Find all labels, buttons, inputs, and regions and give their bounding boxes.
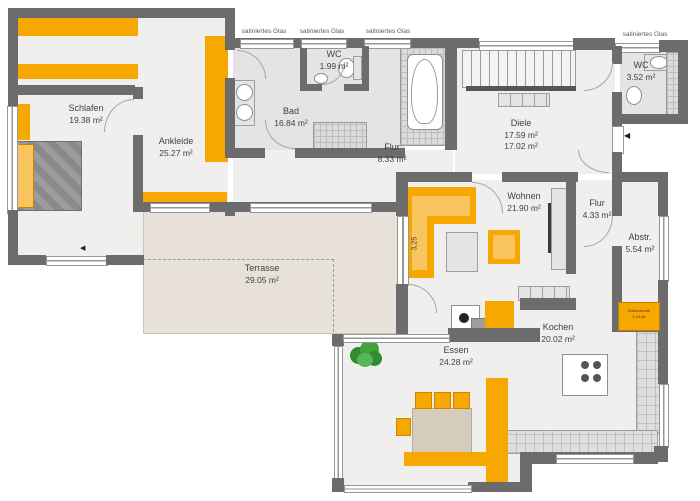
wall-segment (431, 38, 479, 48)
room-name: Bad (283, 106, 299, 116)
toilet-icon (626, 86, 642, 105)
wall-segment (468, 482, 524, 492)
room-area: 17.02 m² (504, 141, 538, 151)
room-area: 3.52 m² (627, 72, 656, 82)
staircase (462, 50, 576, 88)
dining-chair (453, 392, 470, 409)
sofa-seat (412, 200, 427, 270)
room-area: 21.90 m² (507, 203, 541, 213)
cooktop-burner-icon (581, 361, 589, 369)
room-area: 5.54 m² (626, 244, 655, 254)
room-name: Flur (384, 142, 400, 152)
window-wall (334, 346, 343, 480)
room-area: 16.84 m² (274, 118, 308, 128)
tv-screen (548, 203, 551, 253)
room-area: 19.38 m² (69, 115, 103, 125)
wall-post (332, 478, 344, 492)
entrance-arrow-icon: ◀ (624, 132, 630, 140)
wall-segment (448, 328, 540, 342)
room-label-essen: Essen 24.28 m² (439, 345, 473, 368)
sofa-dimension-label: 3,25 (411, 237, 418, 251)
room-label-wohnen: Wohnen 21.90 m² (507, 191, 541, 214)
frosted-glass-window (301, 39, 347, 49)
room-name: WC (633, 60, 648, 70)
room-label-wc2: WC 3.52 m² (627, 60, 656, 83)
wall-segment (612, 182, 622, 216)
desk-chair (459, 313, 469, 323)
room-area: 8.33 m² (378, 154, 407, 164)
room-label-flur1: Flur 8.33 m² (378, 142, 407, 165)
dining-chair (434, 392, 451, 409)
floor-plan: ◀ 3,25 (0, 0, 700, 501)
cooktop-burner-icon (581, 374, 589, 382)
storage-unit-label-box: Kühlschrank 1.20.60 (618, 302, 660, 331)
frosted-glass-window (240, 39, 294, 49)
hall-sideboard (498, 93, 550, 107)
frosted-glass-label: satiniertes Glas (300, 28, 345, 35)
window (150, 203, 210, 213)
dining-bench (404, 452, 486, 466)
wall-segment (658, 172, 668, 216)
room-name: Diele (511, 118, 532, 128)
toilet-tank (353, 56, 362, 80)
storage-unit-line1: Kühlschrank (628, 308, 650, 313)
room-area: 24.28 m² (439, 357, 473, 367)
bed-blanket (16, 144, 34, 208)
wall-segment (612, 46, 622, 64)
overhang-dashed-line (143, 259, 334, 260)
wall-segment (225, 78, 235, 158)
wall-segment (225, 8, 235, 50)
wall-segment (520, 298, 576, 310)
wall-segment (133, 135, 143, 212)
wall-segment (8, 85, 135, 95)
room-name: Wohnen (507, 191, 540, 201)
room-area: 1.99 m² (320, 61, 349, 71)
bathtub-basin (411, 59, 438, 124)
wall-segment (573, 38, 615, 50)
window (250, 203, 372, 213)
dining-table (412, 408, 472, 456)
wardrobe-shelf (14, 17, 138, 36)
wall-segment (396, 284, 408, 334)
window (7, 106, 18, 214)
wall-segment (445, 38, 457, 150)
frosted-glass-label: satiniertes Glas (366, 28, 411, 35)
wall-segment (8, 255, 46, 265)
room-label-bad: Bad 16.84 m² (274, 106, 308, 129)
room-name: Flur (589, 198, 605, 208)
kitchen-counter-bottom (506, 430, 658, 454)
wall-segment (233, 148, 265, 158)
window (479, 41, 575, 51)
room-name: Schlafen (68, 103, 103, 113)
window (659, 384, 669, 448)
dining-chair (396, 418, 411, 436)
stool (485, 301, 514, 328)
room-name: Terrasse (245, 263, 280, 273)
wall-segment (396, 180, 408, 216)
wall-segment (502, 172, 578, 182)
cooktop-burner-icon (593, 361, 601, 369)
tall-cabinet (486, 378, 508, 482)
room-label-kochen: Kochen 20.02 m² (541, 322, 575, 345)
shower-tray (313, 122, 367, 150)
room-area: 4.33 m² (583, 210, 612, 220)
plant-icon (350, 340, 384, 372)
window (46, 256, 108, 266)
frosted-glass-window (364, 39, 411, 49)
room-name: Essen (443, 345, 468, 355)
room-area: 29.05 m² (245, 275, 279, 285)
wall-segment (300, 48, 307, 88)
frosted-glass-label: satiniertes Glas (242, 28, 287, 35)
wall-segment (658, 334, 668, 384)
coffee-table (446, 232, 478, 272)
room-label-terrasse: Terrasse 29.05 m² (245, 263, 280, 286)
wardrobe-sideboard (143, 192, 227, 202)
terrace-door-window (397, 216, 409, 286)
washbasin-icon (236, 104, 253, 121)
washbasin-icon (236, 84, 253, 101)
room-name: Kochen (543, 322, 574, 332)
room-label-schlafen: Schlafen 19.38 m² (68, 103, 103, 126)
room-name: WC (326, 49, 341, 59)
room-area: 25.27 m² (159, 148, 193, 158)
wall-segment (106, 255, 144, 265)
wardrobe-shelf (14, 64, 138, 79)
wall-segment (620, 114, 688, 124)
window-wall (343, 334, 450, 343)
frosted-glass-label: satiniertes Glas (623, 31, 668, 38)
room-label-flur2: Flur 4.33 m² (583, 198, 612, 221)
dining-chair (415, 392, 432, 409)
window (659, 216, 669, 282)
entrance-door (612, 126, 624, 154)
armchair-seat (493, 235, 515, 259)
wall-segment (566, 182, 576, 274)
window-wall (344, 485, 472, 493)
wall-segment (300, 84, 322, 91)
overhang-dashed-line (333, 259, 334, 332)
wall-segment (612, 92, 622, 126)
wall-segment (678, 40, 688, 124)
room-label-diele: Diele 17.59 m² 17.02 m² (504, 118, 538, 153)
wall-segment (344, 84, 369, 91)
room-area: 20.02 m² (541, 334, 575, 344)
window (556, 454, 634, 464)
storage-unit-line2: 1.20.60 (632, 314, 645, 319)
room-name: Abstr. (628, 232, 651, 242)
stair-railing (466, 86, 576, 91)
wall-segment (8, 8, 235, 18)
room-name: Ankleide (159, 136, 194, 146)
room-label-wc1: WC 1.99 m² (320, 49, 349, 72)
room-label-ankleide: Ankleide 25.27 m² (159, 136, 194, 159)
door-direction-arrow-icon: ◀ (80, 245, 85, 252)
room-label-abstr: Abstr. 5.54 m² (626, 232, 655, 255)
cooktop-burner-icon (593, 374, 601, 382)
room-area: 17.59 m² (504, 130, 538, 140)
